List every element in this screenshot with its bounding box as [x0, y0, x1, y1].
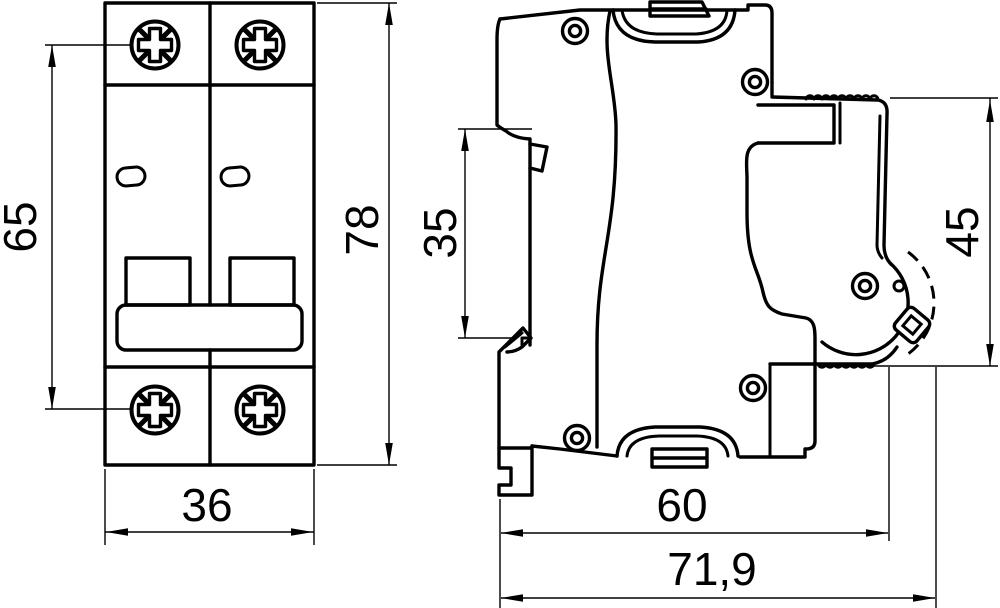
- din-clip: [499, 328, 531, 448]
- terminal-screw-icon: [132, 22, 179, 69]
- terminal-screw-icon: [237, 387, 284, 434]
- dimension-label-71-9: 71,9: [667, 543, 757, 595]
- dimension-78: 78: [317, 3, 397, 465]
- terminal-box: [758, 105, 834, 143]
- mid-right-profile: [747, 143, 815, 363]
- dimension-label-60: 60: [656, 479, 707, 531]
- terminal-screw-icon: [237, 22, 284, 69]
- label-window-slot: [116, 166, 145, 186]
- toggle-dolly-left: [126, 258, 190, 305]
- dimension-71-9: 71,9: [501, 367, 936, 608]
- din-recess-wall: [497, 19, 530, 345]
- rivet-icon: [563, 19, 588, 44]
- housing-mold-line: [597, 11, 616, 447]
- breaker-dimension-drawing: 65 78 36 35 45 60 71,9: [0, 0, 1000, 608]
- wall-inner-line: [877, 116, 882, 258]
- terminal-screw-icon: [132, 387, 179, 434]
- dimension-65: 65: [0, 45, 131, 409]
- lever-pin: [894, 281, 904, 291]
- bottom-terminal-tab: [652, 449, 707, 467]
- rivet-icon: [565, 426, 590, 451]
- rivet-icon: [743, 70, 768, 95]
- toggle-rocker-bar: [117, 305, 302, 350]
- top-terminal-tab: [650, 2, 709, 16]
- label-window-slot: [220, 166, 249, 186]
- toggle-lever-tip: [892, 305, 931, 344]
- din-tooth: [530, 144, 547, 171]
- technical-drawing-page: 65 78 36 35 45 60 71,9: [0, 0, 1000, 608]
- dimension-35: 35: [414, 129, 532, 338]
- top-arch-inner: [622, 10, 727, 34]
- dimension-label-65: 65: [0, 201, 46, 252]
- dimension-label-36: 36: [181, 479, 232, 531]
- bottom-arch-inner: [627, 436, 728, 456]
- rivet-icon: [741, 376, 766, 401]
- rivet-icon: [853, 274, 878, 299]
- side-view: [497, 2, 934, 495]
- dimension-36: 36: [105, 469, 314, 545]
- toggle-dolly-right: [230, 258, 294, 305]
- dimension-label-35: 35: [414, 207, 466, 258]
- front-view: [105, 3, 314, 465]
- upper-shelf-and-wall: [772, 97, 892, 265]
- din-latch: [499, 446, 532, 495]
- dimension-label-78: 78: [336, 204, 388, 255]
- side-top-edge: [500, 5, 772, 95]
- dimension-label-45: 45: [936, 206, 988, 257]
